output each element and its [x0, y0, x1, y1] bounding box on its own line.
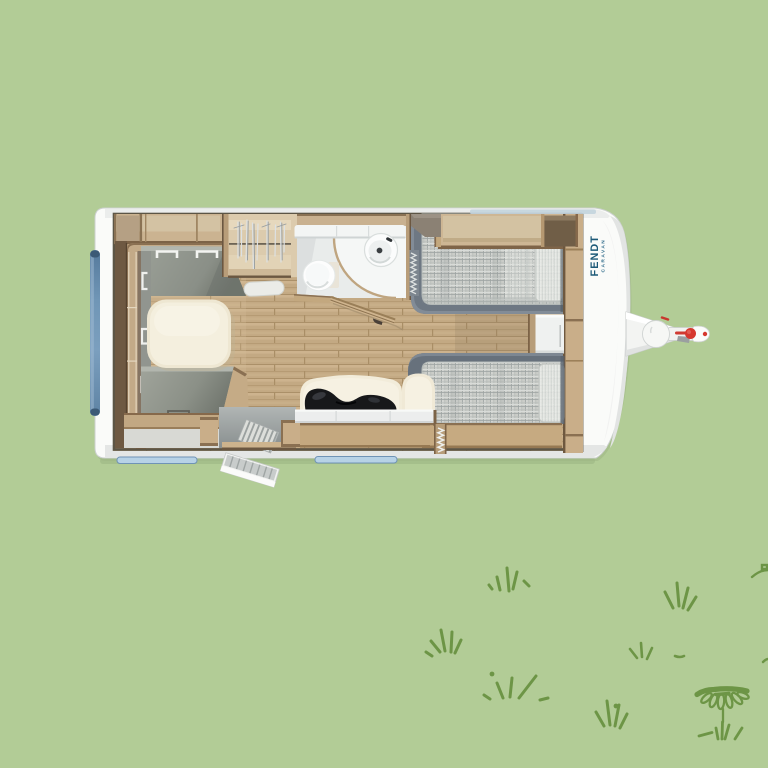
svg-text:FENDT: FENDT [589, 235, 601, 277]
svg-text:CARAVAN: CARAVAN [601, 239, 607, 273]
